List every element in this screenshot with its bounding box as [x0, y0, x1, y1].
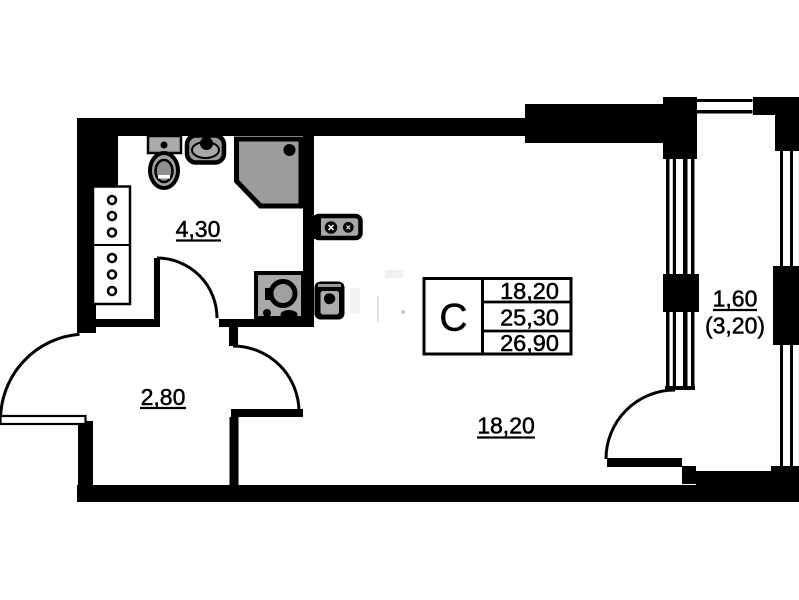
svg-text:(3,20): (3,20)	[705, 313, 765, 339]
svg-text:2,80: 2,80	[141, 384, 186, 410]
svg-text:1,60: 1,60	[713, 286, 758, 312]
svg-text:18,20: 18,20	[477, 413, 535, 439]
svg-text:C: C	[439, 297, 467, 340]
svg-text:25,30: 25,30	[500, 305, 559, 331]
svg-text:18,20: 18,20	[500, 278, 559, 304]
svg-text:26,90: 26,90	[500, 330, 559, 356]
svg-text:4,30: 4,30	[176, 216, 221, 242]
